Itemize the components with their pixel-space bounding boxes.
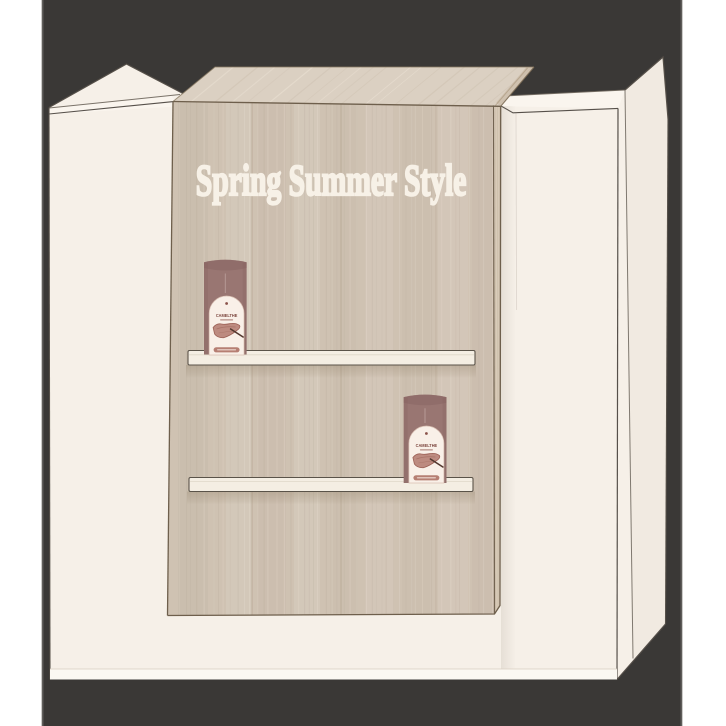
svg-text:CAMELTHE: CAMELTHE (216, 313, 238, 318)
svg-text:Spring Summer Style: Spring Summer Style (196, 156, 467, 205)
svg-text:CAMELTHE: CAMELTHE (416, 443, 438, 448)
